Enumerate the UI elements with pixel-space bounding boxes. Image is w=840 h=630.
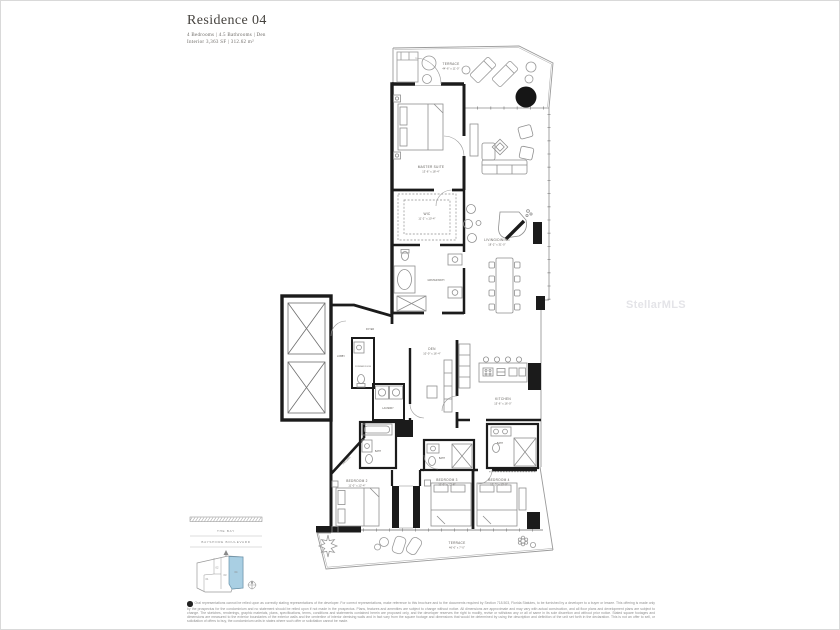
room-dims: 18'-2" x 31'-0" — [488, 243, 505, 247]
lounge-chair-icon — [405, 536, 423, 556]
plant-icon — [526, 62, 536, 72]
daybed-icon — [397, 52, 418, 82]
room-label: TERRACE — [449, 541, 466, 545]
lounge-seat-icon — [468, 234, 477, 243]
sink-icon — [354, 342, 364, 353]
disclaimer-text: Oral representations cannot be relied up… — [187, 601, 655, 623]
vanity-icon — [362, 440, 372, 452]
bedroom-furniture — [332, 480, 526, 533]
room-dims: 44'-6" x 11'-0" — [442, 67, 459, 71]
washer-icon — [376, 386, 389, 399]
street-label-top: THE BAY — [217, 529, 235, 533]
room-label: DEN — [428, 347, 436, 351]
room-dims: 12'-0" x 13'-0" — [490, 483, 507, 487]
elevator-shafts — [288, 303, 325, 413]
room-dims: 11'-2" x 10'-4" — [418, 217, 435, 221]
bath-fixtures — [362, 424, 536, 468]
armchair-icon — [519, 146, 534, 160]
lounge-chair-icon — [391, 535, 407, 555]
room-label: BATH — [439, 457, 445, 460]
terrace-bottom-furniture — [319, 535, 536, 557]
room-label: BATH — [375, 450, 381, 453]
room-label: LAUNDRY — [382, 407, 394, 410]
terrace-top-furniture — [397, 52, 537, 108]
stool-icon — [494, 357, 499, 362]
room-dims: 10'-0" x 16'-4" — [423, 352, 440, 356]
plant-icon — [525, 75, 533, 83]
vanity-icon — [448, 254, 462, 265]
room-dims: 11'-0" x 12'-4" — [348, 484, 365, 488]
toilet-icon — [366, 455, 373, 464]
room-label: MASTER SUITE — [418, 165, 445, 169]
room-label: LOBBY — [337, 355, 345, 358]
armchair-icon — [518, 124, 534, 139]
floorplan-sheet: Residence 04 4 Bedrooms | 4.5 Bathrooms … — [0, 0, 840, 630]
compass-icon — [248, 581, 257, 590]
room-label: FOYER — [366, 328, 375, 331]
bed-icon — [398, 104, 443, 150]
vanity-icon — [427, 444, 439, 453]
bed-icon — [336, 488, 379, 526]
room-label: POWDER ROOM — [355, 366, 371, 368]
floor-plan: TERRACE 44'-6" x 11'-0" MASTER SUITE 13'… — [0, 0, 840, 630]
round-table-icon — [380, 538, 389, 547]
street-label-bottom: BAYSHORE BOULEVARD — [201, 540, 250, 544]
room-label: LIVING/DINING — [484, 238, 510, 242]
kitchen-island — [479, 363, 527, 382]
key-plan: THE BAY BAYSHORE BOULEVARD 01 02 03 04 — [190, 517, 262, 592]
spa-icon — [516, 87, 537, 108]
scale-bar — [190, 517, 262, 522]
den-furniture — [427, 360, 452, 412]
toilet-icon — [429, 457, 436, 466]
stool-icon — [483, 357, 488, 362]
legal-disclaimer: Oral representations cannot be relied up… — [187, 601, 655, 624]
lounge-seat-icon — [467, 205, 476, 214]
room-label: BEDROOM 3 — [436, 478, 457, 482]
room-label: KITCHEN — [495, 397, 511, 401]
glass-walls — [331, 108, 549, 530]
building-key — [197, 556, 243, 592]
round-table-icon — [422, 56, 436, 70]
room-labels: TERRACE 44'-6" x 11'-0" MASTER SUITE 13'… — [337, 62, 512, 550]
room-label: BATH — [497, 442, 503, 445]
coffee-table-icon — [492, 139, 508, 155]
room-label: WIC — [424, 212, 431, 216]
flower-plant-icon — [518, 536, 527, 546]
stool-icon — [516, 357, 521, 362]
powder-laundry-fixtures — [354, 342, 403, 399]
toilet-icon — [358, 375, 365, 384]
flower-plant-icon — [530, 542, 535, 547]
living-furniture — [464, 124, 535, 313]
dining-table-icon — [496, 258, 513, 313]
vanity-icon — [448, 287, 462, 298]
room-label: BEDROOM 4 — [488, 478, 509, 482]
stool-icon — [505, 357, 510, 362]
kitchen-fixtures — [459, 344, 527, 388]
sofa-icon — [482, 160, 527, 174]
vanity-icon — [491, 427, 511, 436]
cooktop-icon — [483, 368, 493, 376]
room-label: TERRACE — [443, 62, 460, 66]
room-dims: 11'-0" x 12'-8" — [438, 483, 455, 487]
dryer-icon — [390, 386, 403, 399]
room-label: MASTER BATH — [428, 279, 445, 282]
room-label: BEDROOM 2 — [346, 479, 367, 483]
room-dims: 15'-6" x 16'-0" — [494, 402, 511, 406]
room-dims: 46'-0" x 7'-0" — [449, 546, 465, 550]
room-dims: 13'-6" x 18'-4" — [422, 170, 439, 174]
